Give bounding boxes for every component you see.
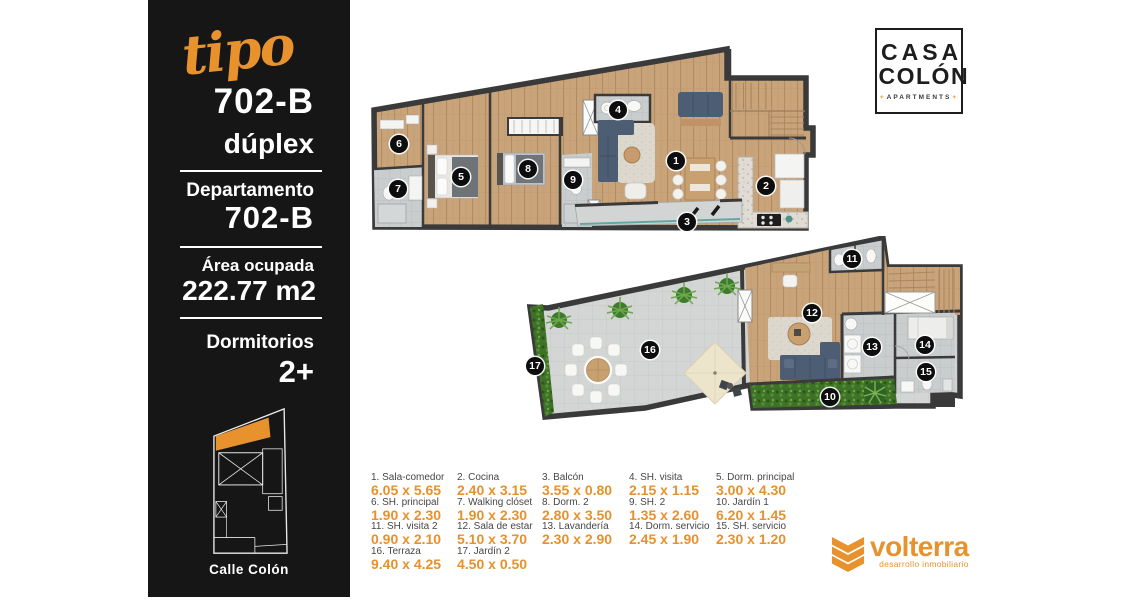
legend-item-9: 9. SH. 21.35 x 2.60 bbox=[629, 497, 716, 522]
legend-item-5: 5. Dorm. principal3.00 x 4.30 bbox=[716, 472, 816, 497]
department-label: Departamento bbox=[186, 180, 314, 202]
sink bbox=[845, 318, 857, 330]
legend-item-16: 16. Terraza9.40 x 4.25 bbox=[371, 546, 457, 571]
apartments-word: APARTMENTS bbox=[887, 94, 952, 101]
volterra-text: volterra desarrollo inmobiliario bbox=[870, 532, 969, 569]
chair bbox=[673, 175, 683, 185]
washer bbox=[844, 335, 861, 353]
wall-step bbox=[933, 394, 955, 407]
nightstand bbox=[427, 199, 437, 208]
room-marker-12: 12 bbox=[803, 304, 821, 322]
legend-item-7: 7. Walking clóset1.90 x 2.30 bbox=[457, 497, 542, 522]
legend-item-6: 6. SH. principal1.90 x 2.30 bbox=[371, 497, 457, 522]
sofa bbox=[678, 92, 723, 117]
chair bbox=[783, 275, 797, 287]
developer-tagline: desarrollo inmobiliario bbox=[870, 559, 969, 569]
appliance bbox=[780, 180, 804, 208]
room-marker-13: 13 bbox=[863, 338, 881, 356]
legend-item-2: 2. Cocina2.40 x 3.15 bbox=[457, 472, 542, 497]
legend-item-8: 8. Dorm. 22.80 x 3.50 bbox=[542, 497, 629, 522]
armchair bbox=[625, 183, 646, 199]
developer-name: volterra bbox=[870, 532, 969, 562]
volterra-chevron-icon bbox=[831, 535, 865, 573]
info-panel: tipo 702-B dúplex Departamento 702-B Áre… bbox=[148, 0, 350, 597]
sink bbox=[901, 381, 914, 392]
toilet bbox=[627, 101, 641, 112]
logo-word-casa: CASA bbox=[877, 41, 961, 64]
dryer bbox=[844, 355, 861, 373]
console-table bbox=[680, 119, 721, 126]
floorplan-flyer: tipo 702-B dúplex Departamento 702-B Áre… bbox=[0, 0, 1140, 600]
room-marker-17: 17 bbox=[526, 357, 544, 375]
sink bbox=[786, 216, 793, 223]
street-label: Calle Colón bbox=[148, 562, 350, 577]
closet-shelf bbox=[380, 120, 404, 129]
legend-item-14: 14. Dorm. servicio2.45 x 1.90 bbox=[629, 521, 716, 546]
closet-shelf bbox=[406, 115, 419, 124]
room-marker-14: 14 bbox=[916, 336, 934, 354]
pillow bbox=[784, 359, 794, 368]
balcony bbox=[575, 200, 742, 226]
legend-item-3: 3. Balcón3.55 x 0.80 bbox=[542, 472, 629, 497]
toilet bbox=[866, 249, 876, 263]
pillow bbox=[946, 318, 952, 338]
highlighted-unit bbox=[216, 418, 271, 451]
logo-word-colon: COLÓN bbox=[877, 64, 961, 88]
department-value: 702-B bbox=[225, 200, 314, 236]
sink-counter bbox=[564, 158, 590, 167]
room-marker-15: 15 bbox=[917, 363, 935, 381]
location-keyplan bbox=[205, 404, 295, 560]
casa-colon-logo: CASA COLÓN +APARTMENTS+ bbox=[875, 28, 963, 114]
area-label: Área ocupada bbox=[202, 256, 314, 276]
pillow bbox=[828, 359, 837, 368]
bedrooms-value: 2+ bbox=[279, 354, 314, 390]
room-marker-5: 5 bbox=[452, 168, 470, 186]
room-marker-8: 8 bbox=[519, 160, 537, 178]
nightstand bbox=[427, 145, 437, 154]
upper-floor-plan bbox=[368, 36, 818, 238]
keyplan-outline bbox=[214, 409, 287, 553]
plus-icon: + bbox=[880, 94, 886, 101]
console-table bbox=[772, 263, 810, 272]
room-marker-3: 3 bbox=[678, 213, 696, 231]
room-legend: 1. Sala-comedor6.05 x 5.65 2. Cocina2.40… bbox=[371, 472, 816, 571]
fridge bbox=[775, 154, 804, 178]
bedrooms-label: Dormitorios bbox=[206, 332, 314, 354]
legend-item-4: 4. SH. visita2.15 x 1.15 bbox=[629, 472, 716, 497]
chair bbox=[716, 161, 726, 171]
shower bbox=[943, 379, 952, 391]
unit-number: 702-B bbox=[214, 82, 314, 122]
chaise bbox=[820, 342, 840, 360]
chair bbox=[716, 175, 726, 185]
lower-floor-plan bbox=[523, 236, 965, 428]
room-marker-4: 4 bbox=[609, 101, 627, 119]
volterra-logo: volterra desarrollo inmobiliario bbox=[831, 532, 969, 573]
shower bbox=[378, 204, 406, 223]
legend-item-12: 12. Sala de estar5.10 x 3.70 bbox=[457, 521, 542, 546]
legend-item-13: 13. Lavandería2.30 x 2.90 bbox=[542, 521, 629, 546]
room-marker-6: 6 bbox=[390, 135, 408, 153]
room-marker-10: 10 bbox=[821, 388, 839, 406]
plus-icon: + bbox=[952, 94, 958, 101]
outdoor-dining-set bbox=[565, 337, 627, 403]
room-marker-16: 16 bbox=[641, 341, 659, 359]
area-value: 222.77 m2 bbox=[182, 275, 316, 307]
room-marker-2: 2 bbox=[757, 177, 775, 195]
type-script-word: tipo bbox=[179, 12, 296, 87]
legend-item-1: 1. Sala-comedor6.05 x 5.65 bbox=[371, 472, 457, 497]
room-marker-1: 1 bbox=[667, 152, 685, 170]
stove bbox=[757, 214, 781, 226]
legend-item-15: 15. SH. servicio2.30 x 1.20 bbox=[716, 521, 816, 546]
legend-item-10: 10. Jardín 16.20 x 1.45 bbox=[716, 497, 816, 522]
legend-item-11: 11. SH. visita 20.90 x 2.10 bbox=[371, 521, 457, 546]
logo-apartments-line: +APARTMENTS+ bbox=[877, 94, 961, 101]
divider bbox=[180, 170, 322, 172]
divider bbox=[180, 317, 322, 319]
chair bbox=[716, 189, 726, 199]
chair bbox=[673, 189, 683, 199]
unit-type: dúplex bbox=[224, 128, 314, 160]
room-marker-9: 9 bbox=[564, 171, 582, 189]
vanity bbox=[409, 176, 422, 200]
room-marker-11: 11 bbox=[843, 250, 861, 268]
coffee-table bbox=[624, 147, 640, 163]
room-marker-7: 7 bbox=[389, 180, 407, 198]
legend-item-17: 17. Jardín 24.50 x 0.50 bbox=[457, 546, 542, 571]
divider bbox=[180, 246, 322, 248]
